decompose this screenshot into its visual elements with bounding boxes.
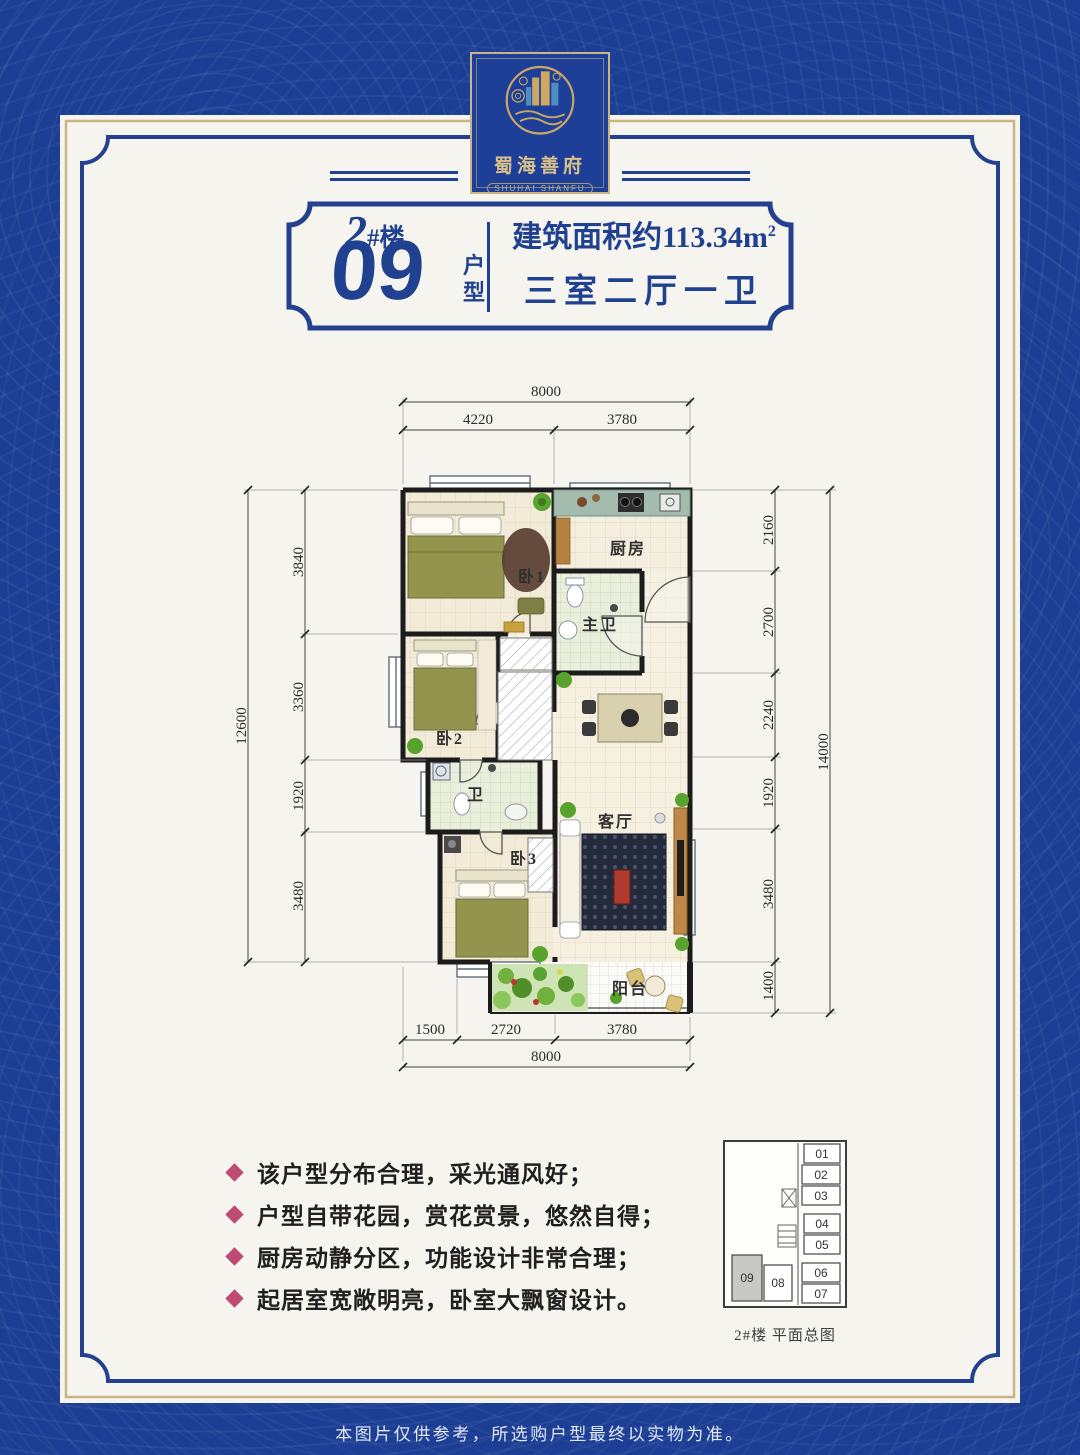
feature-item: 厨房动静分区，功能设计非常合理； <box>228 1235 665 1277</box>
area-text: 建筑面积约113.34m2 <box>497 212 791 256</box>
room-label-master-bath: 主卫 <box>582 615 618 634</box>
feature-item: 起居室宽敞明亮，卧室大飘窗设计。 <box>228 1277 665 1319</box>
disclaimer-text: 本图片仅供参考，所选购户型最终以实物为准。 <box>0 1420 1080 1445</box>
unit-cell-label: 05 <box>815 1238 829 1252</box>
unit-cell-label: 04 <box>815 1217 829 1231</box>
dim-bottom-3: 3780 <box>607 1022 637 1038</box>
room-label-bed3: 卧3 <box>510 850 538 868</box>
room-label-bed2: 卧2 <box>436 730 464 748</box>
plaque-divider <box>487 222 490 312</box>
dim-left-3: 1920 <box>291 781 307 811</box>
logo-side-line <box>622 171 750 174</box>
logo-side-line <box>622 178 750 181</box>
area-value: 建筑面积约113.34m <box>512 221 768 254</box>
dim-right-4: 1920 <box>761 778 777 808</box>
dim-right-5: 3480 <box>761 879 777 909</box>
diamond-bullet-icon <box>225 1247 243 1265</box>
logo-side-line <box>330 171 458 174</box>
room-label-living: 客厅 <box>598 812 634 831</box>
logo-side-line <box>330 178 458 181</box>
dim-left-4: 3480 <box>291 881 307 911</box>
dim-right-3: 2240 <box>761 700 777 730</box>
dim-bottom-total: 8000 <box>531 1049 561 1065</box>
dim-right-1: 2160 <box>761 515 777 545</box>
feature-text: 厨房动静分区，功能设计非常合理； <box>257 1239 641 1273</box>
dim-left-1: 3840 <box>291 547 307 577</box>
feature-item: 该户型分布合理，采光通风好； <box>228 1151 665 1193</box>
unit-type-label: 户型 <box>463 252 489 306</box>
room-label-balcony: 阳台 <box>612 979 648 998</box>
feature-text: 起居室宽敞明亮，卧室大飘窗设计。 <box>257 1281 641 1315</box>
dim-bottom-1: 1500 <box>415 1022 445 1038</box>
feature-text: 户型自带花园，赏花赏景，悠然自得； <box>257 1197 665 1231</box>
building-key-plan: 01 02 03 04 05 06 07 08 09 2#楼 平面总图 <box>710 1137 860 1345</box>
unit-header-plaque: 2#楼 09 户型 建筑面积约113.34m2 三室二厅一卫 <box>285 200 795 332</box>
feature-text: 该户型分布合理，采光通风好； <box>257 1155 593 1189</box>
dim-top-total: 8000 <box>531 384 561 400</box>
diamond-bullet-icon <box>225 1163 243 1181</box>
dim-left-total: 12600 <box>234 707 250 745</box>
unit-cell-label: 08 <box>771 1276 785 1290</box>
diamond-bullet-icon <box>225 1205 243 1223</box>
room-layout-text: 三室二厅一卫 <box>497 264 791 312</box>
dim-right-6: 1400 <box>761 971 777 1001</box>
unit-cell-label: 03 <box>814 1189 828 1203</box>
dim-right-total: 14000 <box>816 733 832 771</box>
unit-cell-label: 06 <box>814 1266 828 1280</box>
area-superscript: 2 <box>768 223 776 240</box>
unit-cell-label: 07 <box>814 1287 828 1301</box>
dim-top-2: 3780 <box>607 412 637 428</box>
dim-bottom-2: 2720 <box>491 1022 521 1038</box>
brand-logo: 蜀海善府 SHUHAI SHANFU <box>470 52 610 194</box>
floor-plan: 8000 4220 3780 12600 3840 3360 1920 3480… <box>230 372 870 1107</box>
floorplan-poster: { "colors":{"background_blue":"#1c3e94",… <box>0 0 1080 1455</box>
dim-top-1: 4220 <box>463 412 493 428</box>
room-label-bed1: 卧1 <box>518 568 546 586</box>
unit-cell-label: 02 <box>814 1168 828 1182</box>
diamond-bullet-icon <box>225 1289 243 1307</box>
feature-list: 该户型分布合理，采光通风好； 户型自带花园，赏花赏景，悠然自得； 厨房动静分区，… <box>228 1151 665 1319</box>
logo-inner-frame <box>476 58 604 188</box>
feature-item: 户型自带花园，赏花赏景，悠然自得； <box>228 1193 665 1235</box>
key-plan-caption: 2#楼 平面总图 <box>710 1324 860 1345</box>
unit-cell-label: 01 <box>815 1147 829 1161</box>
unit-cell-label-highlighted: 09 <box>740 1271 754 1285</box>
room-label-bath: 卫 <box>467 787 485 804</box>
dim-right-2: 2700 <box>761 607 777 637</box>
room-label-kitchen: 厨房 <box>610 539 646 558</box>
dim-left-2: 3360 <box>291 682 307 712</box>
unit-number: 09 <box>328 222 428 318</box>
poster-card: 2#楼 09 户型 建筑面积约113.34m2 三室二厅一卫 <box>60 115 1020 1403</box>
